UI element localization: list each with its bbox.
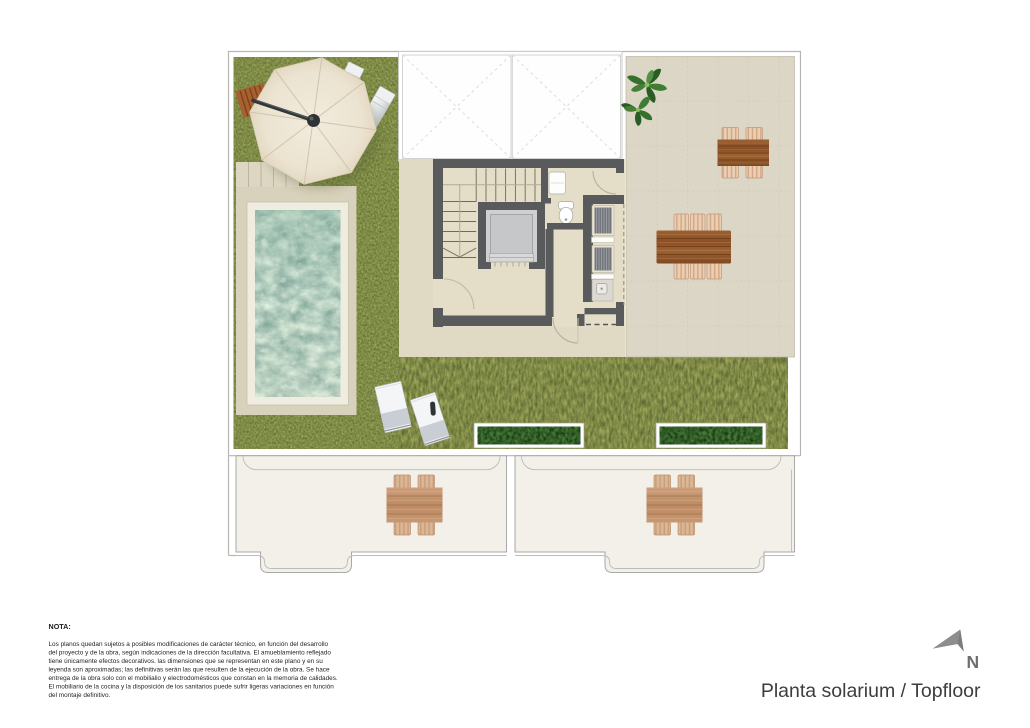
svg-text:Los planos quedan sujetos a po: Los planos quedan sujetos a posibles mod… — [49, 641, 329, 648]
svg-text:El mobiliario de la cocina y l: El mobiliario de la cocina y la disposic… — [49, 684, 335, 691]
svg-text:del montaje definitivo.: del montaje definitivo. — [49, 692, 111, 699]
svg-text:del proyecto y de la obra, seg: del proyecto y de la obra, según indicac… — [49, 650, 332, 657]
svg-text:NOTA:: NOTA: — [49, 622, 71, 631]
svg-text:entrega de la obra solo con el: entrega de la obra solo con el mobiliali… — [49, 675, 338, 682]
svg-text:tiene únicamente efectos decor: tiene únicamente efectos decorativos. la… — [49, 658, 324, 665]
svg-text:Planta solarium / Topfloor: Planta solarium / Topfloor — [761, 680, 981, 702]
svg-text:leyenda son aproximadas; las d: leyenda son aproximadas; las definitivas… — [49, 667, 330, 674]
svg-text:N: N — [967, 652, 980, 672]
